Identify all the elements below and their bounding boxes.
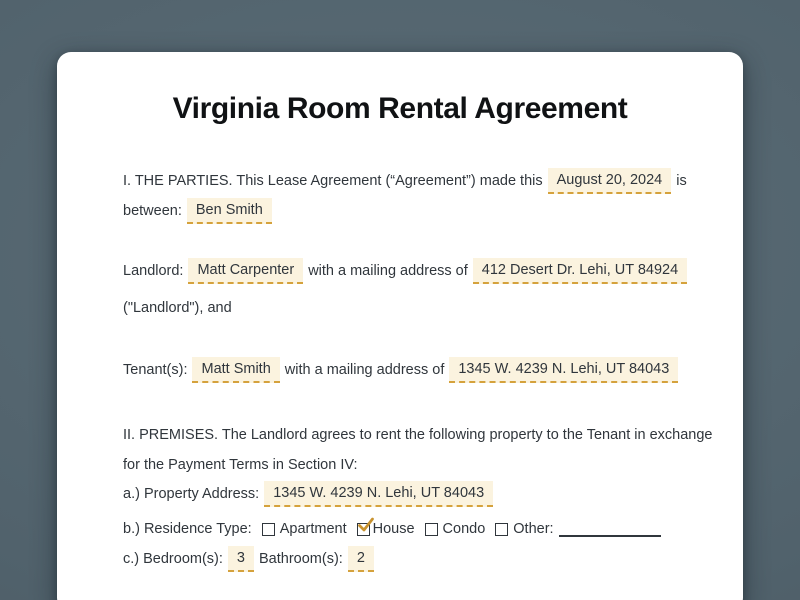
premises-intro-text-2: for the Payment Terms in Section IV: [123, 457, 358, 473]
landlord-address-text: with a mailing address of [308, 263, 468, 279]
residence-type-label: b.) Residence Type: [123, 521, 252, 537]
checkbox-house[interactable] [357, 523, 370, 536]
parties-intro-line: I. THE PARTIES. This Lease Agreement (“A… [123, 166, 687, 196]
bedrooms-label: c.) Bedroom(s): [123, 551, 223, 567]
checkbox-other[interactable] [495, 523, 508, 536]
premises-intro-text-1: II. PREMISES. The Landlord agrees to ren… [123, 427, 713, 443]
checkbox-condo[interactable] [425, 523, 438, 536]
checkbox-apartment[interactable] [262, 523, 275, 536]
landlord-address-field[interactable]: 412 Desert Dr. Lehi, UT 84924 [473, 258, 687, 284]
premises-intro-line-2: for the Payment Terms in Section IV: [123, 450, 358, 480]
landlord-closing-text: ("Landlord"), and [123, 300, 232, 316]
parties-between-line: between: Ben Smith [123, 196, 272, 226]
rooms-line: c.) Bedroom(s): 3 Bathroom(s): 2 [123, 544, 374, 574]
bathrooms-field[interactable]: 2 [348, 546, 374, 572]
tenant-name-field[interactable]: Matt Smith [192, 357, 279, 383]
landlord-label: Landlord: [123, 263, 183, 279]
bedrooms-field[interactable]: 3 [228, 546, 254, 572]
option-label-other: Other: [513, 521, 553, 537]
landlord-name-field[interactable]: Matt Carpenter [188, 258, 303, 284]
property-address-line: a.) Property Address: 1345 W. 4239 N. Le… [123, 479, 493, 509]
parties-intro-text: I. THE PARTIES. This Lease Agreement (“A… [123, 173, 543, 189]
tenant-address-text: with a mailing address of [285, 362, 445, 378]
parties-after-date-text: is [676, 173, 686, 189]
checkmark-icon [357, 517, 374, 533]
between-label: between: [123, 203, 182, 219]
agreement-date-field[interactable]: August 20, 2024 [548, 168, 672, 194]
option-label-house: House [373, 521, 415, 537]
property-address-label: a.) Property Address: [123, 486, 259, 502]
landlord-closing-line: ("Landlord"), and [123, 293, 232, 323]
residence-type-line: b.) Residence Type: Apartment House Cond… [123, 514, 661, 544]
document-title: Virginia Room Rental Agreement [57, 91, 743, 127]
premises-intro-line-1: II. PREMISES. The Landlord agrees to ren… [123, 420, 713, 450]
bathrooms-label: Bathroom(s): [259, 551, 343, 567]
option-label-apartment: Apartment [280, 521, 347, 537]
tenant-address-field[interactable]: 1345 W. 4239 N. Lehi, UT 84043 [449, 357, 678, 383]
option-label-condo: Condo [443, 521, 486, 537]
party-name-field[interactable]: Ben Smith [187, 198, 272, 224]
property-address-field[interactable]: 1345 W. 4239 N. Lehi, UT 84043 [264, 481, 493, 507]
tenant-label: Tenant(s): [123, 362, 187, 378]
document-card: Virginia Room Rental Agreement I. THE PA… [57, 52, 743, 600]
landlord-line: Landlord: Matt Carpenter with a mailing … [123, 256, 687, 286]
other-blank-line[interactable] [559, 535, 661, 537]
tenant-line: Tenant(s): Matt Smith with a mailing add… [123, 355, 678, 385]
